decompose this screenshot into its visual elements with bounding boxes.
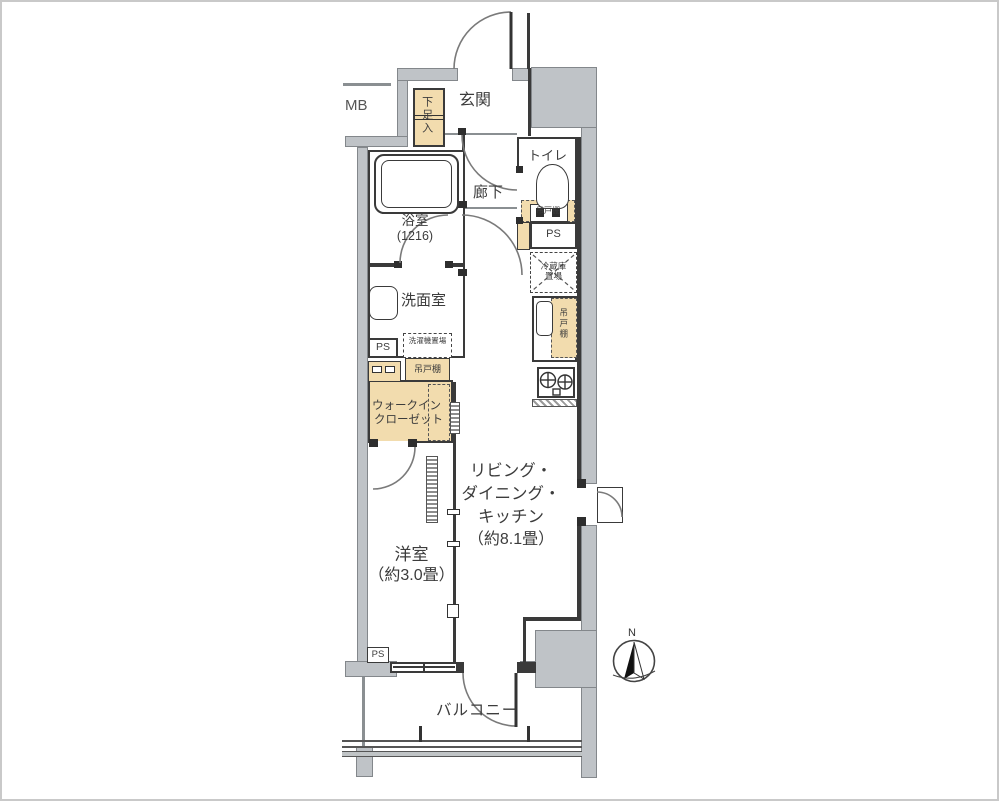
partition-mark-3 (447, 604, 459, 618)
jamb-toilet-door-bottom (516, 217, 523, 224)
label-hallway: 廊下 (473, 184, 503, 201)
ldk-step-wall-v (523, 620, 526, 663)
label-balcony: バルコニー (436, 702, 518, 720)
railing-band (342, 751, 582, 757)
wall-balcony-right (581, 687, 597, 778)
right-window-leaf (597, 487, 623, 523)
balcony-left-wall (362, 677, 365, 747)
label-ldk-line4: （約8.1畳） (449, 531, 573, 549)
jamb-wic-door-right (408, 439, 417, 447)
wall-right-inner-upper (577, 137, 581, 484)
label-ldk-line2: ダイニング・ (455, 485, 567, 504)
jamb-right-window-bottom (577, 517, 586, 526)
label-toilet: トイレ (528, 149, 567, 164)
genkan-hall-door-arc (462, 135, 517, 190)
hall-ldk-line (462, 207, 517, 209)
label-washer-cupboard: 吊戸棚 (405, 364, 450, 374)
label-entrance: 玄関 (459, 92, 491, 110)
label-western-room-size: （約3.0畳） (360, 567, 463, 585)
label-ldk-line3: キッチン (455, 508, 567, 527)
label-wic-line2: クローゼット (374, 414, 443, 427)
label-ps-washroom: PS (368, 341, 398, 353)
wall-left (357, 147, 368, 677)
label-bathroom-size: (1216) (382, 229, 448, 243)
wall-entrance-right-inner (528, 68, 531, 136)
sliding-door-panel (426, 456, 438, 523)
jamb-genkan-door (458, 128, 466, 135)
partition-hatch (450, 402, 460, 434)
washbasin-icon (369, 286, 398, 320)
label-shoe-cabinet: 下足入 (420, 96, 433, 135)
label-fridge-line2: 置場 (530, 272, 577, 282)
bedroom-window-tick (423, 663, 425, 672)
railing-line-1 (342, 740, 582, 742)
label-bathroom: 浴室 (382, 213, 448, 229)
label-toilet-cupboard: 吊戸棚 (521, 206, 575, 215)
label-ps-toilet: PS (530, 228, 577, 241)
hall-ldk-door-arc (462, 215, 522, 275)
ps-side-strip (517, 222, 530, 250)
railing-post-1 (419, 726, 422, 742)
wall-bottom-right-block (535, 630, 597, 688)
label-kitchen-cupboard: 吊戸棚 (558, 308, 568, 340)
wic-shelf-box-1 (372, 366, 382, 373)
label-washer-space: 洗濯機置場 (403, 337, 452, 346)
entrance-step-line (445, 133, 517, 135)
wall-top-right-block (531, 67, 597, 128)
jamb-right-window-top (577, 479, 586, 488)
label-wic-line1: ウォークイン (372, 400, 441, 413)
bathtub-inner (381, 160, 452, 208)
door-swing-overlay (0, 0, 999, 801)
jamb-toilet-door-top (516, 166, 523, 173)
label-ldk-line1: リビング・ (455, 462, 567, 481)
mb-boundary-line (343, 83, 391, 86)
label-mb: MB (345, 97, 368, 114)
wall-right-upper (581, 127, 597, 484)
label-western-room: 洋室 (369, 545, 454, 565)
wall-bottom-right-seg (517, 662, 536, 673)
ldk-step-wall-h (523, 617, 581, 621)
label-ps-bottom: PS (367, 650, 389, 661)
floor-plan: MB 玄関 下足入 廊下 トイレ 浴室 (1216) 洗面室 PS PS PS … (0, 0, 999, 801)
railing-line-2 (342, 746, 582, 748)
wic-shelf-box-2 (385, 366, 395, 373)
railing-post-2 (527, 726, 530, 742)
jamb-wic-door-left (369, 439, 378, 447)
counter-edge-hatch (532, 399, 577, 407)
wall-right-mid (581, 525, 597, 631)
kitchen-sink-icon (536, 301, 553, 336)
wic-door-arc (373, 447, 415, 489)
jamb-bath-door-right (445, 261, 453, 268)
label-compass-north: N (628, 627, 636, 640)
stove (537, 367, 575, 398)
entrance-door-arc (454, 12, 511, 69)
jamb-bath-door-left (394, 261, 402, 268)
wall-entrance-top (397, 68, 458, 81)
compass-icon (613, 641, 655, 682)
toilet-door-opening (517, 170, 520, 217)
entrance-door-frame (527, 13, 530, 69)
jamb-hall-door-bottom (458, 269, 467, 276)
jamb-hall-door-top (458, 201, 467, 208)
wall-right-inner-lower (577, 525, 581, 618)
bathroom-door-opening (401, 263, 447, 268)
label-washroom: 洗面室 (401, 292, 446, 309)
wall-mb-bottom (345, 136, 408, 147)
toilet-bowl-icon (536, 164, 569, 209)
